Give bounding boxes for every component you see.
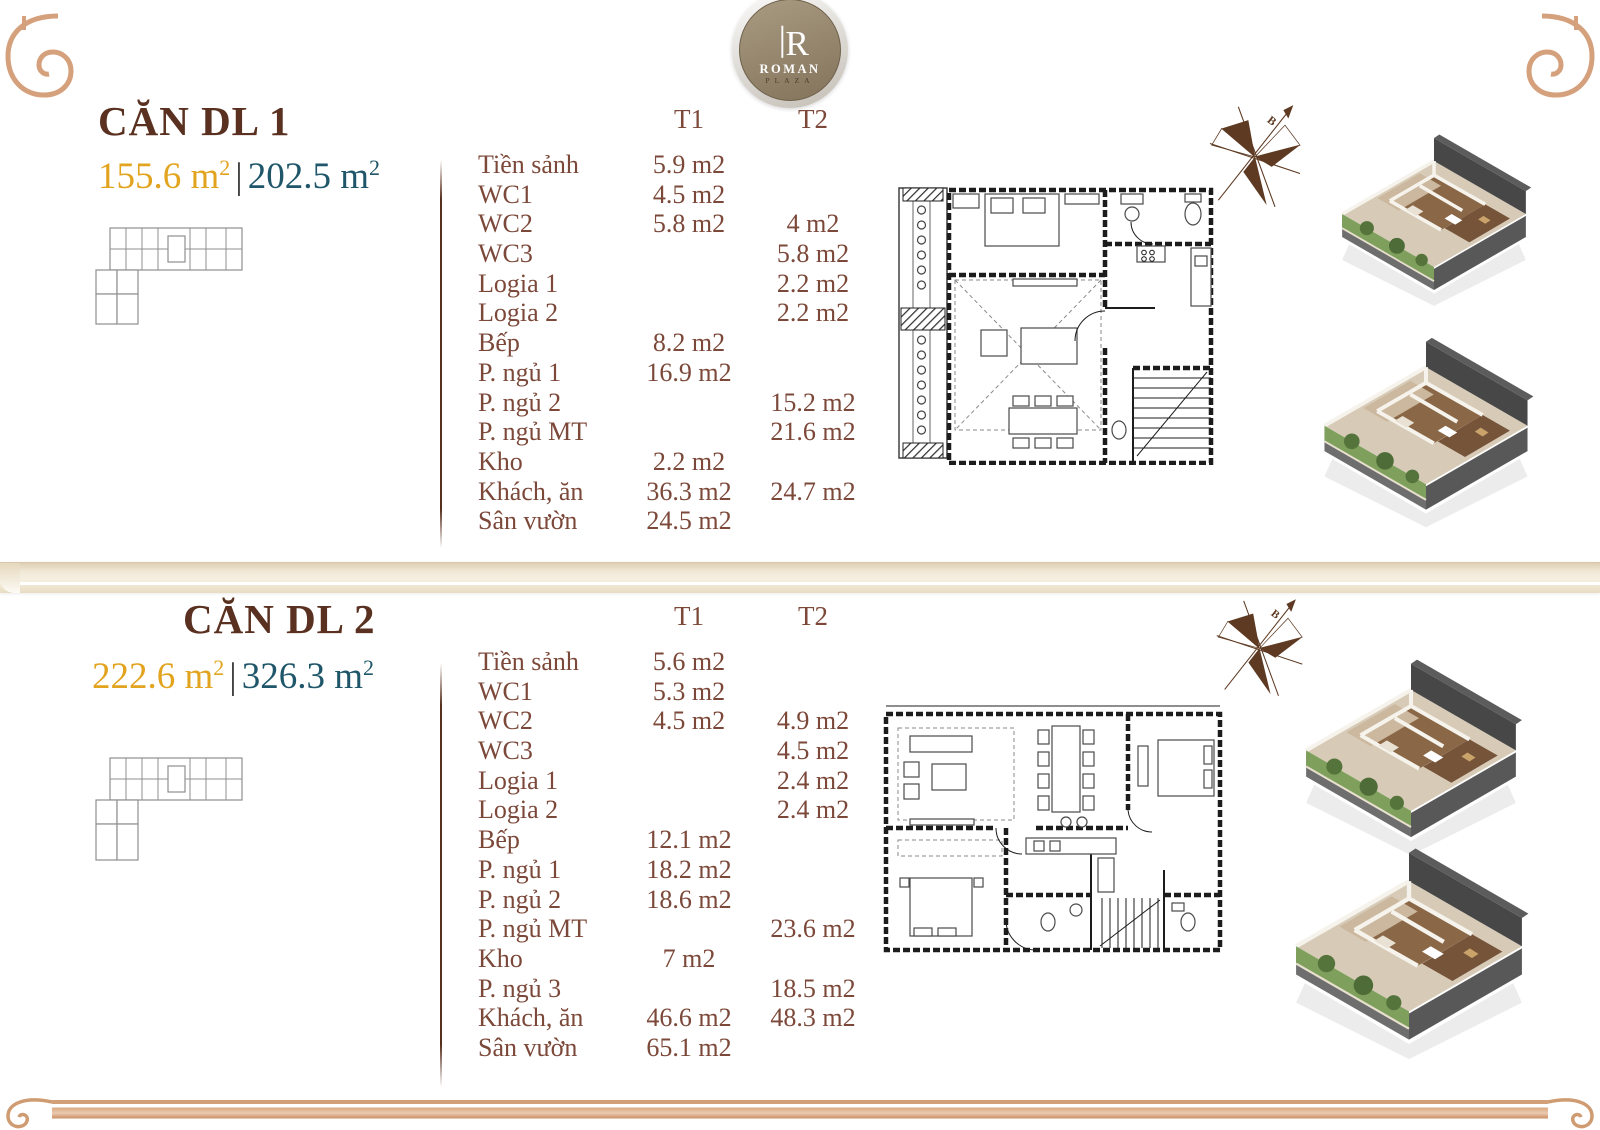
room-label: Kho — [478, 944, 630, 974]
table-row: Kho2.2 m2 — [478, 447, 888, 477]
room-label: WC3 — [478, 239, 630, 269]
logo-monogram-icon: R — [767, 19, 813, 63]
area-t1 — [630, 795, 748, 825]
col-header-t2: T2 — [748, 601, 878, 631]
area-t1: 12.1 m2 — [630, 825, 748, 855]
floorplan-3d-render-upper-dl1 — [1328, 112, 1540, 332]
area-t1: 5.6 m2 — [630, 647, 748, 677]
area-t2-value: 202.5 m2 — [248, 156, 380, 197]
table-row: Khách, ăn36.3 m224.7 m2 — [478, 477, 888, 507]
table-header: T1 T2 — [478, 601, 888, 631]
area-t1: 5.9 m2 — [630, 150, 748, 180]
room-area-table-dl1: T1 T2 Tiền sảnh5.9 m2WC14.5 m2WC25.8 m24… — [478, 104, 888, 536]
area-t2: 24.7 m2 — [748, 477, 878, 507]
unit-title-dl1: CĂN DL 1 — [98, 99, 291, 143]
area-t2 — [748, 885, 878, 915]
area-t2 — [748, 358, 878, 388]
corner-spacer — [478, 104, 630, 134]
room-label: Logia 2 — [478, 795, 630, 825]
area-t1 — [630, 388, 748, 418]
area-t2: 15.2 m2 — [748, 388, 878, 418]
bathroom-fixtures — [1112, 194, 1201, 439]
area-t1: 2.2 m2 — [630, 447, 748, 477]
col-header-t1: T1 — [630, 104, 748, 134]
room-label: P. ngủ 2 — [478, 885, 630, 915]
room-label: Khách, ăn — [478, 477, 630, 507]
area-t2: 4.5 m2 — [748, 736, 878, 766]
unit-title-dl2: CĂN DL 2 — [183, 597, 376, 641]
area-t2: 2.4 m2 — [748, 766, 878, 796]
area-t1 — [630, 239, 748, 269]
area-t1: 8.2 m2 — [630, 328, 748, 358]
table-row: P. ngủ 116.9 m2 — [478, 358, 888, 388]
room-label: Logia 2 — [478, 298, 630, 328]
room-label: Khách, ăn — [478, 1003, 630, 1033]
living-furniture — [981, 279, 1077, 448]
table-row: Tiền sảnh5.9 m2 — [478, 150, 888, 180]
area-t2: 21.6 m2 — [748, 417, 878, 447]
room-label: P. ngủ 1 — [478, 855, 630, 885]
table-row: Bếp8.2 m2 — [478, 328, 888, 358]
area-t2: 2.2 m2 — [748, 298, 878, 328]
room-label: P. ngủ 2 — [478, 388, 630, 418]
area-t2: 4 m2 — [748, 209, 878, 239]
area-t1: 18.2 m2 — [630, 855, 748, 885]
table-row: Bếp12.1 m2 — [478, 825, 888, 855]
area-t2 — [748, 328, 878, 358]
area-t1: 16.9 m2 — [630, 358, 748, 388]
area-t1: 5.8 m2 — [630, 209, 748, 239]
bottom-border-ornament — [0, 1088, 1600, 1130]
area-t2 — [748, 677, 878, 707]
room-label: P. ngủ 3 — [478, 974, 630, 1004]
room-area-table-dl2: T1 T2 Tiền sảnh5.6 m2WC15.3 m2WC24.5 m24… — [478, 601, 888, 1063]
room-label: WC2 — [478, 706, 630, 736]
room-label: P. ngủ MT — [478, 417, 630, 447]
compass-rose-icon: B — [1205, 100, 1305, 212]
table-header: T1 T2 — [478, 104, 888, 134]
table-row: Logia 22.4 m2 — [478, 795, 888, 825]
room-label: WC1 — [478, 180, 630, 210]
area-t1 — [630, 766, 748, 796]
kitchen-fixtures — [1137, 246, 1211, 306]
area-t2 — [748, 855, 878, 885]
area-t2: 4.9 m2 — [748, 706, 878, 736]
area-t2 — [748, 447, 878, 477]
left-curl-icon — [8, 1100, 52, 1127]
area-t2: 2.4 m2 — [748, 795, 878, 825]
area-t2 — [748, 944, 878, 974]
area-separator: | — [230, 156, 247, 197]
table-row: Kho7 m2 — [478, 944, 888, 974]
col-header-t2: T2 — [748, 104, 878, 134]
table-row: WC14.5 m2 — [478, 180, 888, 210]
floorplan-3d-render-upper-dl2 — [1290, 652, 1532, 867]
area-t2 — [748, 180, 878, 210]
area-t1: 36.3 m2 — [630, 477, 748, 507]
table-row: P. ngủ 218.6 m2 — [478, 885, 888, 915]
table-row: P. ngủ 118.2 m2 — [478, 855, 888, 885]
highlighted-unit-cell — [117, 270, 138, 294]
area-t1 — [630, 974, 748, 1004]
room-label: WC3 — [478, 736, 630, 766]
table-row: Sân vườn24.5 m2 — [478, 506, 888, 536]
table-row: P. ngủ MT23.6 m2 — [478, 914, 888, 944]
room-label: P. ngủ MT — [478, 914, 630, 944]
room-label: Bếp — [478, 328, 630, 358]
vertical-divider — [440, 160, 442, 548]
highlighted-unit-cell — [117, 824, 138, 860]
area-t2-value: 326.3 m2 — [242, 656, 374, 697]
area-t1-value: 222.6 m2 — [92, 656, 224, 697]
area-t1: 65.1 m2 — [630, 1033, 748, 1063]
room-label: WC1 — [478, 677, 630, 707]
stairs — [1133, 378, 1211, 448]
corner-spacer — [478, 601, 630, 631]
floorplan-3d-render-lower-dl1 — [1300, 332, 1552, 537]
area-t1: 4.5 m2 — [630, 706, 748, 736]
area-t1-value: 155.6 m2 — [98, 156, 230, 197]
area-t2 — [748, 1033, 878, 1063]
area-t1 — [630, 417, 748, 447]
bedroom-furniture — [953, 194, 1099, 246]
table-row: WC24.5 m24.9 m2 — [478, 706, 888, 736]
table-row: WC25.8 m24 m2 — [478, 209, 888, 239]
right-curl-icon — [1548, 1100, 1592, 1127]
table-row: P. ngủ MT21.6 m2 — [478, 417, 888, 447]
building-keyplan-dl1 — [90, 222, 248, 334]
area-t1: 4.5 m2 — [630, 180, 748, 210]
area-t1: 46.6 m2 — [630, 1003, 748, 1033]
brochure-page: R ROMAN PLAZA CĂN DL 1 155.6 m2|202.5 m2… — [0, 0, 1600, 1130]
building-keyplan-dl2 — [90, 752, 248, 872]
area-t1: 5.3 m2 — [630, 677, 748, 707]
dining-furniture — [1038, 726, 1094, 827]
room-label: Bếp — [478, 825, 630, 855]
vertical-divider — [440, 663, 442, 1087]
room-label: Tiền sảnh — [478, 150, 630, 180]
highlighted-unit-cell — [96, 270, 117, 294]
floorplan-2d-dl2 — [876, 700, 1230, 980]
floorplan-3d-render-lower-dl2 — [1278, 842, 1540, 1070]
area-t1: 18.6 m2 — [630, 885, 748, 915]
table-row: Logia 22.2 m2 — [478, 298, 888, 328]
area-separator: | — [224, 656, 241, 697]
room-label: Logia 1 — [478, 766, 630, 796]
area-t2 — [748, 825, 878, 855]
table-row: Khách, ăn46.6 m248.3 m2 — [478, 1003, 888, 1033]
area-t1: 7 m2 — [630, 944, 748, 974]
area-t2 — [748, 647, 878, 677]
room-label: P. ngủ 1 — [478, 358, 630, 388]
table-row: WC35.8 m2 — [478, 239, 888, 269]
area-t1 — [630, 269, 748, 299]
area-t2 — [748, 506, 878, 536]
unit-areas-dl2: 222.6 m2|326.3 m2 — [92, 648, 374, 697]
table-row: Tiền sảnh5.6 m2 — [478, 647, 888, 677]
area-t2: 23.6 m2 — [748, 914, 878, 944]
room-label: Kho — [478, 447, 630, 477]
table-row: Sân vườn65.1 m2 — [478, 1033, 888, 1063]
area-t2: 48.3 m2 — [748, 1003, 878, 1033]
logo-medallion: R ROMAN PLAZA — [739, 0, 841, 101]
bedroom-right-furniture — [1138, 740, 1214, 796]
col-header-t1: T1 — [630, 601, 748, 631]
unit-areas-dl1: 155.6 m2|202.5 m2 — [98, 148, 380, 197]
area-t1 — [630, 298, 748, 328]
room-label: Logia 1 — [478, 269, 630, 299]
area-t1: 24.5 m2 — [630, 506, 748, 536]
table-row: Logia 12.2 m2 — [478, 269, 888, 299]
area-t2: 18.5 m2 — [748, 974, 878, 1004]
living-furniture — [904, 736, 974, 825]
table-row: WC34.5 m2 — [478, 736, 888, 766]
logo-subtitle: PLAZA — [765, 76, 814, 85]
area-t1 — [630, 914, 748, 944]
logo-name: ROMAN — [759, 63, 820, 76]
room-label: Sân vườn — [478, 1033, 630, 1063]
highlighted-unit-cell — [96, 824, 117, 860]
room-label: WC2 — [478, 209, 630, 239]
area-t2: 2.2 m2 — [748, 269, 878, 299]
room-label: Sân vườn — [478, 506, 630, 536]
bedroom-left-furniture — [898, 840, 1002, 936]
table-row: P. ngủ 318.5 m2 — [478, 974, 888, 1004]
floorplan-2d-dl1 — [893, 180, 1215, 465]
area-t2 — [748, 150, 878, 180]
area-t2: 5.8 m2 — [748, 239, 878, 269]
table-row: P. ngủ 215.2 m2 — [478, 388, 888, 418]
room-label: Tiền sảnh — [478, 647, 630, 677]
table-row: Logia 12.4 m2 — [478, 766, 888, 796]
table-row: WC15.3 m2 — [478, 677, 888, 707]
section-divider-molding — [0, 562, 1600, 593]
area-t1 — [630, 736, 748, 766]
kitchen-fixtures — [1026, 838, 1116, 892]
logo-monogram: R — [785, 24, 809, 63]
